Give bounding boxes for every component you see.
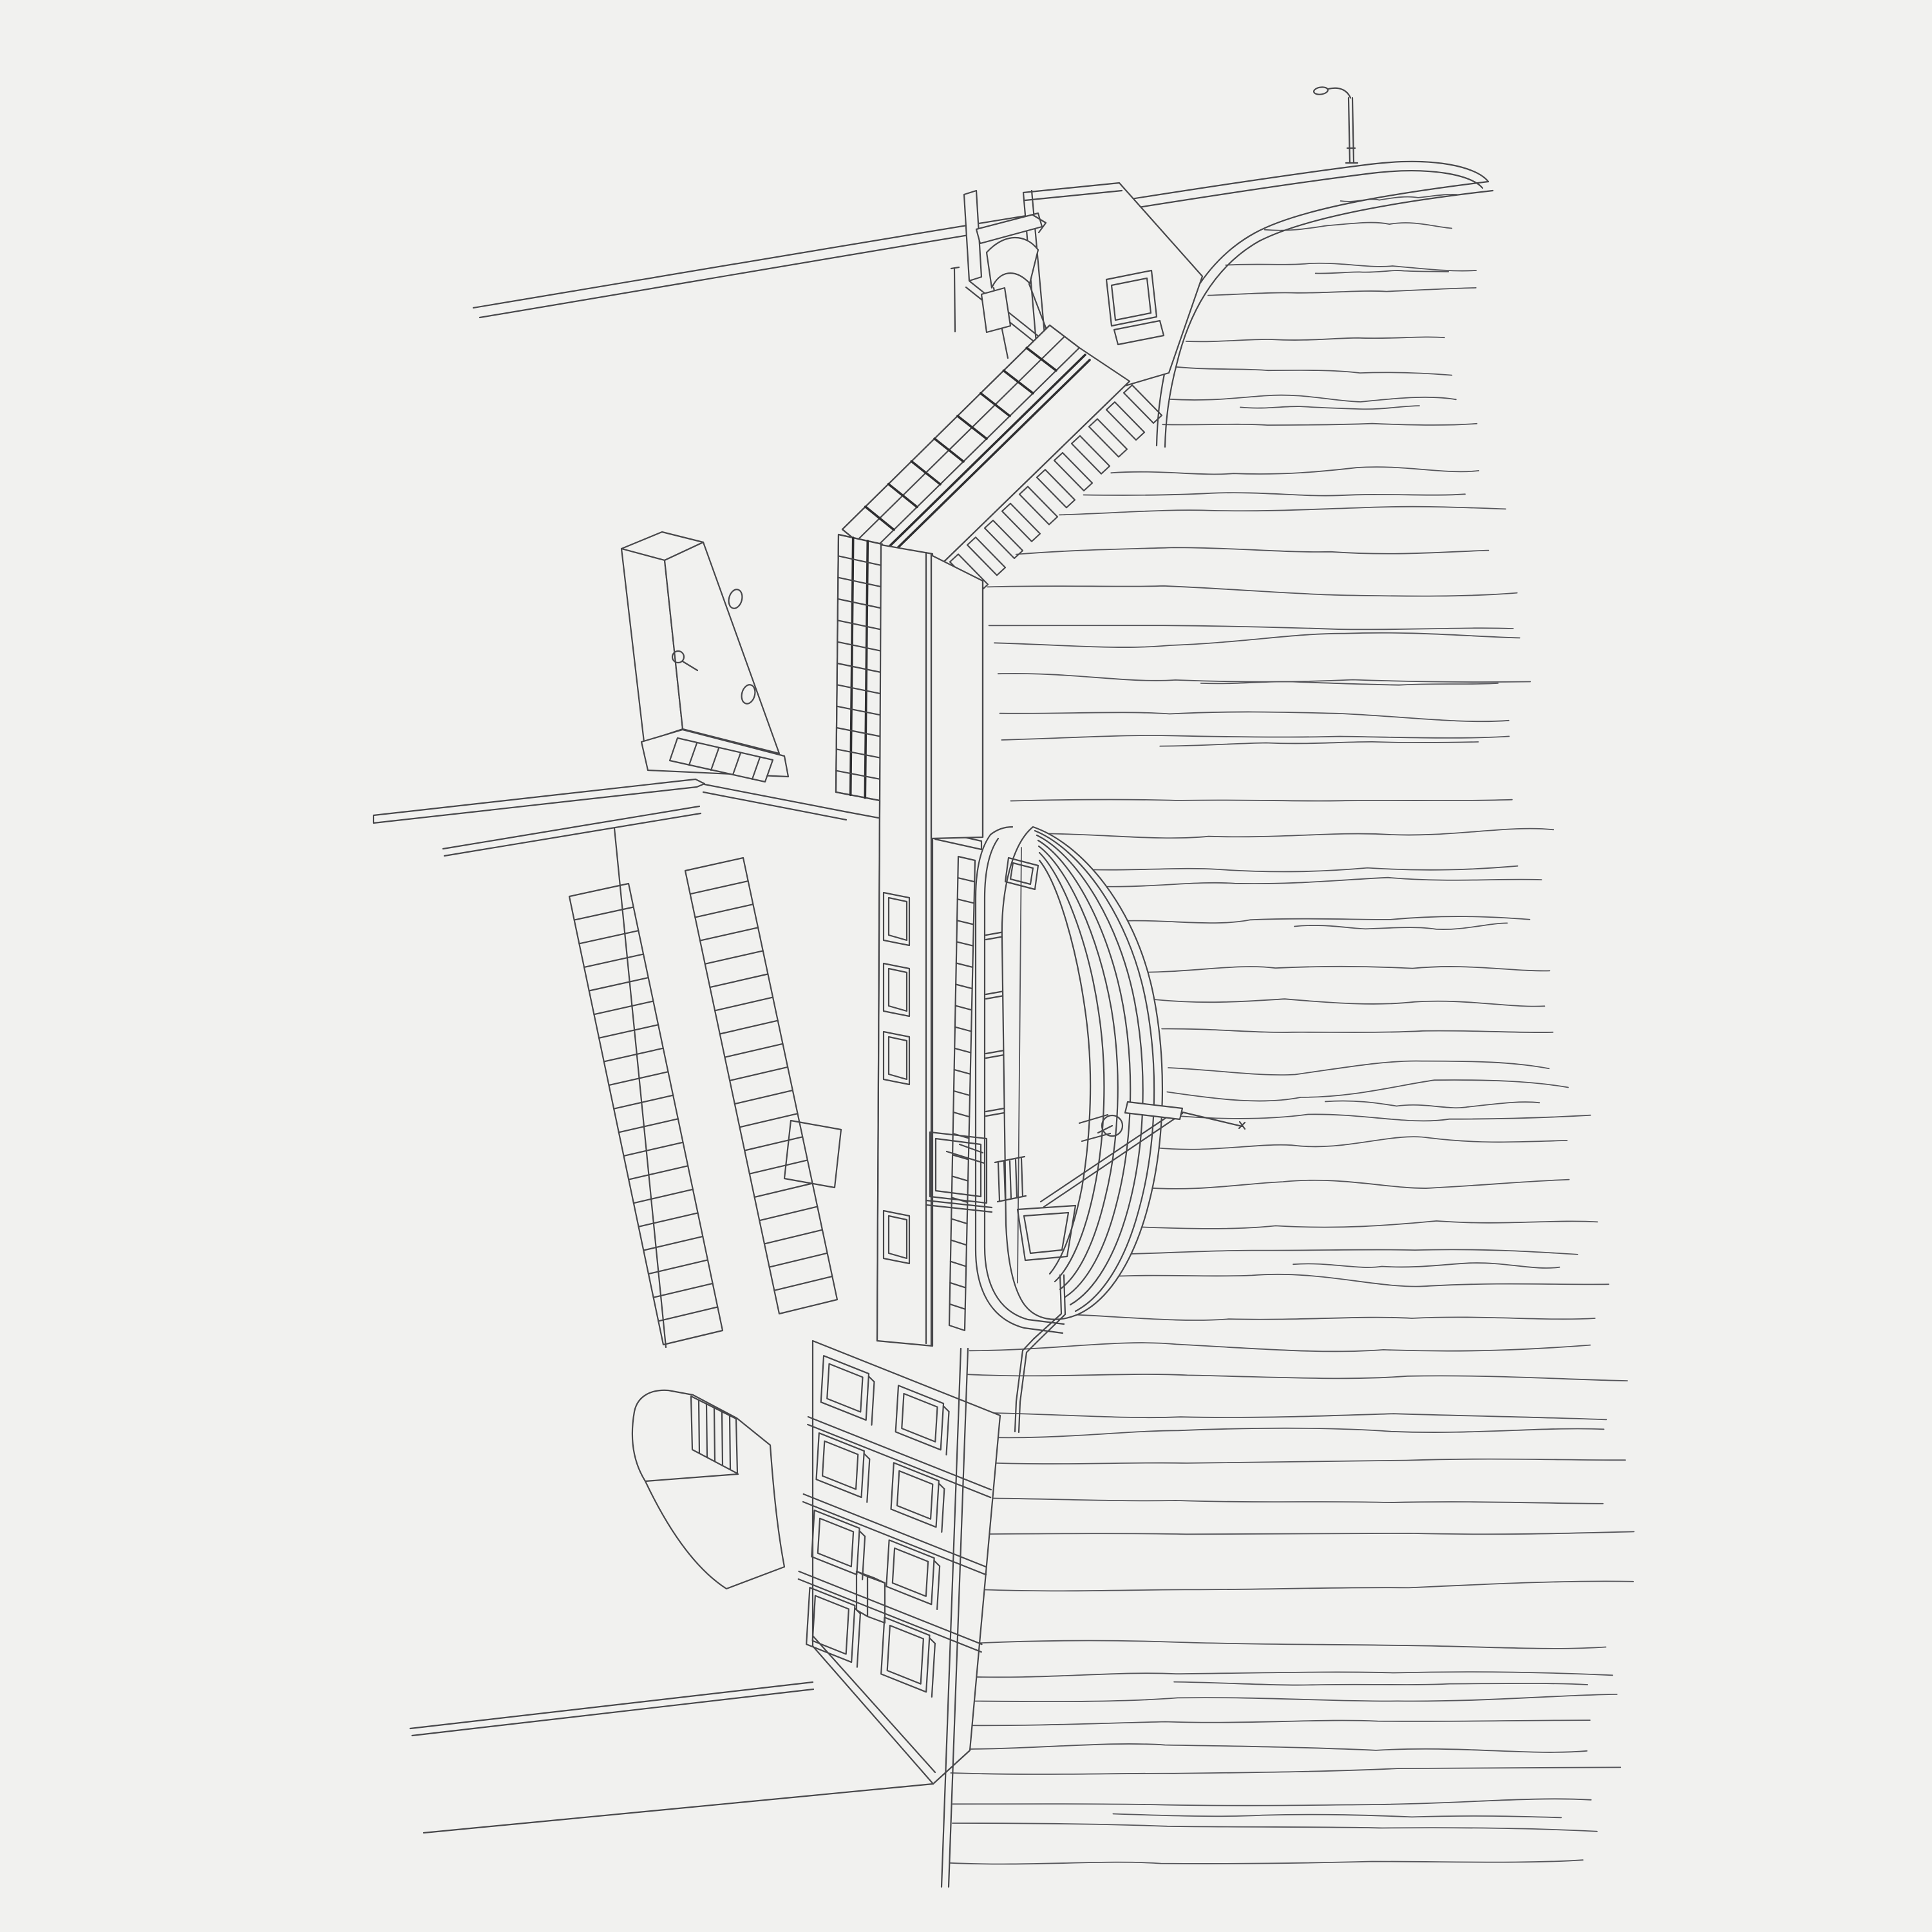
moored-boat xyxy=(995,827,1245,1432)
riverside-axonometric-scene xyxy=(0,0,1932,1932)
street-lamp xyxy=(1313,86,1358,163)
transformer-kiosk xyxy=(621,532,788,782)
facade-building xyxy=(799,1341,1000,1784)
architectural-line-drawing xyxy=(0,0,1932,1932)
curved-kiosk xyxy=(632,1390,784,1589)
roof-ladder-strips xyxy=(569,858,837,1345)
curtain-wall xyxy=(836,535,882,800)
tower-wall xyxy=(784,545,992,1346)
